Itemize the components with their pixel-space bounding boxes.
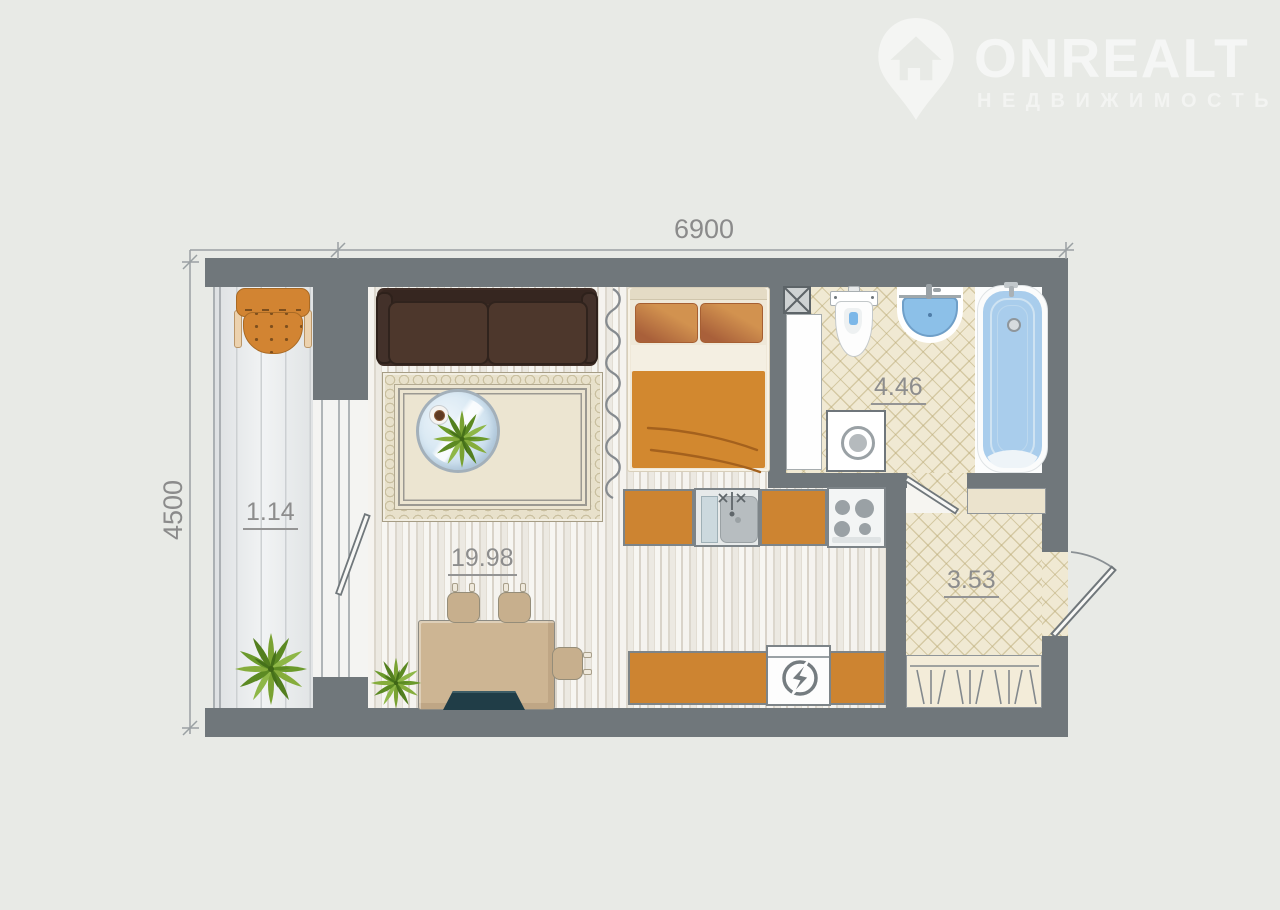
refrigerator-icon xyxy=(766,645,831,706)
bed-headboard xyxy=(630,288,767,300)
kitchen-cabinet-icon xyxy=(623,489,694,546)
stove-burner xyxy=(855,499,874,518)
sink-basin xyxy=(720,496,758,543)
logo-brand-text: ONREALT xyxy=(974,26,1250,90)
wardrobe-icon xyxy=(906,655,1042,708)
onrealt-watermark: ONREALT НЕДВИЖИМОСТЬ xyxy=(876,16,1256,128)
wall xyxy=(768,287,786,473)
kitchen-cabinet-icon xyxy=(628,651,886,705)
toilet-bowl xyxy=(835,301,873,357)
laptop-icon xyxy=(443,691,525,710)
sofa-icon xyxy=(377,288,597,366)
plant-icon xyxy=(430,407,494,471)
dimension-height-label: 4500 xyxy=(143,470,203,550)
tall-cabinet-icon xyxy=(786,314,822,470)
sofa-cushion xyxy=(487,301,588,365)
bed-blanket xyxy=(632,371,765,468)
wall xyxy=(313,677,368,708)
drain-icon xyxy=(1007,318,1021,332)
wall xyxy=(886,473,906,708)
floor-plan-image: ONREALT НЕДВИЖИМОСТЬ 6900 4500 xyxy=(0,0,1280,910)
sink-drainer xyxy=(701,496,718,543)
entrance-threshold xyxy=(1042,552,1068,636)
faucet-icon xyxy=(926,284,932,299)
stove-front-rail xyxy=(832,537,881,543)
plant-icon xyxy=(368,655,424,711)
electric-appliance-icon xyxy=(768,647,829,704)
faucet-handle xyxy=(933,288,941,292)
drain-icon xyxy=(928,313,932,317)
bed-sheet xyxy=(631,345,766,371)
chair-icon xyxy=(447,592,480,623)
balcony-window-zone xyxy=(313,400,368,677)
shelf-icon xyxy=(967,488,1046,514)
armchair-seat xyxy=(243,312,303,354)
living-area-label: 19.98 xyxy=(448,544,517,576)
chair-icon xyxy=(498,592,531,623)
washing-machine-drum xyxy=(841,426,875,460)
double-bed-icon xyxy=(627,287,770,472)
dimension-width-label: 6900 xyxy=(654,214,754,245)
kitchen-cabinet-icon xyxy=(760,489,827,546)
stove-burner xyxy=(835,500,850,515)
chair-icon xyxy=(552,647,583,680)
dimension-line-width xyxy=(190,242,1074,259)
map-pin-house-icon xyxy=(876,16,956,122)
logo-tagline-text: НЕДВИЖИМОСТЬ xyxy=(977,90,1279,113)
toilet-icon xyxy=(828,288,878,356)
wall xyxy=(1042,636,1068,737)
wall xyxy=(205,708,1068,737)
stove-burner xyxy=(859,523,871,535)
wall xyxy=(967,473,1042,488)
wall xyxy=(205,258,1068,287)
stove-icon xyxy=(827,487,886,548)
pillow-icon xyxy=(635,303,698,343)
sofa-cushion xyxy=(388,301,489,365)
kitchen-sink-icon xyxy=(694,488,760,547)
plant-icon xyxy=(231,629,311,709)
balcony-area-label: 1.14 xyxy=(243,498,298,530)
stove-burner xyxy=(834,521,850,537)
ventilation-shaft-icon xyxy=(783,286,811,314)
wall xyxy=(313,287,368,400)
armchair-icon xyxy=(236,288,310,354)
pillow-icon xyxy=(700,303,763,343)
bathtub-icon xyxy=(977,285,1048,473)
bathroom-area-label: 4.46 xyxy=(871,373,926,405)
hallway-area-label: 3.53 xyxy=(944,566,999,598)
washing-machine-icon xyxy=(826,410,886,472)
